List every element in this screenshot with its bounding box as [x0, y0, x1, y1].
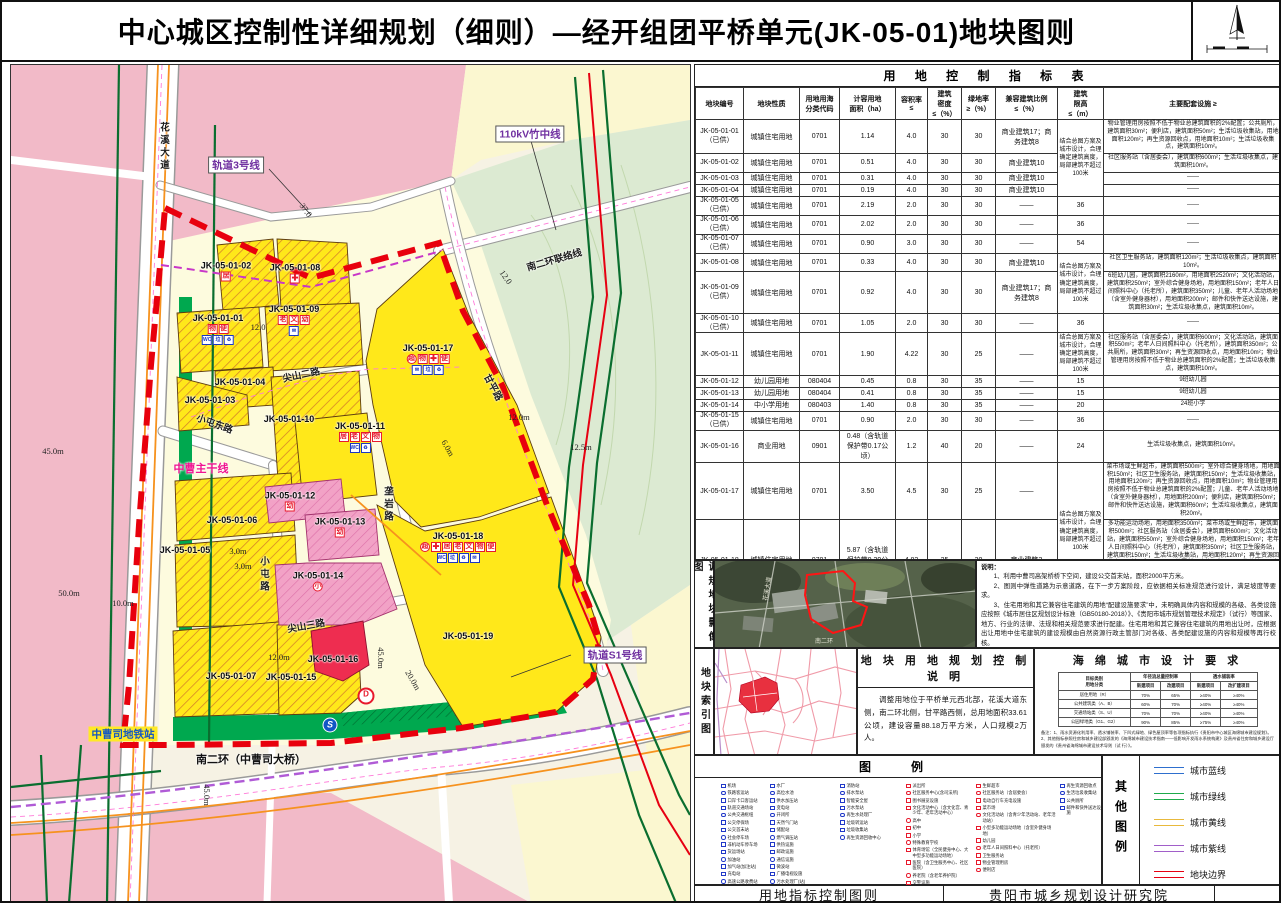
- facility-chip: 垃: [423, 365, 433, 375]
- legend-item-label: 铁路客运站: [728, 790, 749, 795]
- table-cell: ——: [1104, 172, 1281, 184]
- table-cell: ——: [996, 375, 1058, 387]
- legend-item: 加油站: [721, 857, 767, 862]
- table-cell: ——: [1104, 234, 1281, 253]
- plan-sheet: 中心城区控制性详细规划（细则）—经开组团平桥单元(JK-05-01)地块图则: [0, 0, 1281, 903]
- table-row: JK-05-01-18城镇住宅用地07015.87（含轨道 保护带0.39公 顷…: [696, 520, 1281, 560]
- table-cell: 5.87（含轨道 保护带0.39公 顷）: [840, 520, 896, 560]
- table-cell: 城镇住宅用地: [744, 120, 800, 154]
- table-cell: 社区服务站（含居委会），建筑面积600m²；文化活动站，建筑面积550m²；老年…: [1104, 333, 1281, 375]
- legend-item-label: 变电站: [777, 805, 790, 810]
- legend-item-label: 文化活动站（含青少年活动站、老年活动站）: [983, 812, 1057, 823]
- table-cell: 0.45: [840, 375, 896, 387]
- legend-item-label: 生活垃圾收集站: [1067, 790, 1097, 795]
- legend-item-label: 高中: [913, 818, 922, 823]
- table-cell: 0701: [800, 411, 840, 430]
- table-cell: 30: [928, 462, 962, 520]
- legend-item-label: 广播电视设施: [777, 871, 803, 876]
- legend-item-label: 电动自行车充电设施: [983, 798, 1022, 803]
- legend-item: 天然气门站: [770, 820, 832, 825]
- facility-chip: WC: [349, 443, 359, 453]
- block-label: JK-05-01-18超✚居老文物便WC垃♻✉: [420, 531, 496, 563]
- table-cell: 4.0: [896, 120, 928, 154]
- col-header: 容积率 ≤: [896, 88, 928, 120]
- legend-item-icon: [976, 868, 981, 873]
- table-cell: 4.0: [896, 154, 928, 173]
- note-item: 3、住宅用地和其它兼容住宅建筑的用地“配建设施要求”中，未明确具体内容和规模的各…: [981, 601, 1276, 648]
- notes-panel: 说明： 1、利用中曹司高架桥桥下空间，建设公交首末站，面积2000平方米。2、图…: [976, 560, 1281, 648]
- legend-item: 体育场馆（全民健身中心、大中型多功能运动场地）: [906, 847, 972, 858]
- legend-item-label: 公交停保场: [728, 820, 749, 825]
- table-cell: 幼儿园用地: [744, 375, 800, 387]
- other-legend-item: 地块边界: [1154, 868, 1272, 881]
- facility-chip: ✚: [431, 542, 441, 552]
- dimension-label: 12.0: [498, 268, 515, 286]
- block-label: JK-05-01-12幼: [265, 491, 316, 512]
- legend-item-label: 图书展览设施: [913, 798, 939, 803]
- table-row: JK-05-01-11城镇住宅用地07011.904.223025——结合总图方…: [696, 333, 1281, 375]
- table-cell: 30: [962, 272, 996, 314]
- table-cell: 36: [1058, 196, 1104, 215]
- line-swatch: [1154, 793, 1184, 800]
- legend-item-icon: [770, 879, 775, 884]
- table-cell: 城镇住宅用地: [744, 333, 800, 375]
- legend-item: 非机动车停车场: [721, 842, 767, 847]
- table-cell: 城镇住宅用地: [744, 234, 800, 253]
- legend-item-label: 非机动车停车场: [728, 842, 758, 847]
- legend-title: 图 例: [695, 756, 1101, 778]
- table-cell: 商业建筑17；商 务建筑8: [996, 120, 1058, 154]
- legend-panel: 图 例 机场铁路客运站口岸卡口客运站轨道交通场站公共交通枢纽公交停保场公交首末站…: [694, 755, 1102, 885]
- legend-item-label: 垃圾转运站: [847, 820, 868, 825]
- block-label: JK-05-01-10: [264, 414, 315, 424]
- table-row: JK-05-01-01 （已供）城镇住宅用地07011.144.03030商业建…: [696, 120, 1281, 154]
- table-cell: 30: [928, 314, 962, 333]
- legend-item-label: 供水加压站: [777, 798, 798, 803]
- table-cell: JK-05-01-17: [696, 462, 744, 520]
- map-callout: 轨道3号线: [208, 157, 264, 174]
- table-cell: 30: [928, 333, 962, 375]
- facility-chip: 超: [420, 542, 430, 552]
- table-cell: 15: [1058, 375, 1104, 387]
- title-bar: 中心城区控制性详细规划（细则）—经开组团平桥单元(JK-05-01)地块图则: [2, 2, 1191, 62]
- scale-bar-icon: [1207, 45, 1267, 53]
- table-cell: 城镇住宅用地: [744, 272, 800, 314]
- table-cell: 36: [1058, 215, 1104, 234]
- table-cell: 城镇住宅用地: [744, 462, 800, 520]
- block-label: JK-05-01-01物便WC垃♻: [193, 313, 244, 345]
- table-cell: 40: [928, 430, 962, 462]
- facility-chip: 超: [407, 354, 417, 364]
- col-header: 兼容建筑比例 ≤（%）: [996, 88, 1058, 120]
- legend-item-label: 初中: [913, 825, 922, 830]
- facility-chip: ♻: [224, 335, 234, 345]
- block-label: JK-05-01-13幼: [315, 517, 366, 538]
- other-legend-title: 其他图例: [1103, 756, 1140, 884]
- sponge-row: 公共建筑类（A、B）60%70%≥40%≥40%: [1058, 700, 1257, 709]
- table-cell: JK-05-01-03: [696, 172, 744, 184]
- table-cell: JK-05-01-08: [696, 253, 744, 272]
- legend-item: 菜市场: [976, 805, 1056, 810]
- facility-chip: ✉: [412, 365, 422, 375]
- table-cell: 菜市场或生鲜超市，建筑面积500m²；室外综合健身场地，用地面积150m²；社区…: [1104, 462, 1281, 520]
- legend-item-icon: [721, 857, 726, 862]
- table-cell: 0.33: [840, 253, 896, 272]
- sponge-row: 公园绿地类（G1、G2）90%85%≥75%≥40%: [1058, 718, 1257, 727]
- table-cell: 生活垃圾收集点，建筑面积10m²。: [1104, 430, 1281, 462]
- table-cell: 0701: [800, 215, 840, 234]
- table-cell: 30: [962, 184, 996, 196]
- table-cell: JK-05-01-02: [696, 154, 744, 173]
- legend-item-label: 消防站: [847, 783, 860, 788]
- legend-item: 公共厕所: [1060, 798, 1102, 803]
- legend-item: 轨道交通场站: [721, 805, 767, 810]
- table-cell: JK-05-01-09 （已供）: [696, 272, 744, 314]
- legend-item: 再生资源回收点: [1060, 783, 1102, 788]
- legend-item-label: 污水处理厂(站): [777, 879, 806, 884]
- table-cell: ——: [996, 196, 1058, 215]
- dimension-label: 6.0m: [439, 438, 456, 458]
- block-label: JK-05-01-09老文幼✉: [269, 304, 320, 336]
- legend-item-icon: [840, 820, 845, 825]
- facility-chip: ✉: [289, 326, 299, 336]
- legend-item: 铁路客运站: [721, 790, 767, 795]
- legend-item: 垃圾收集站: [840, 827, 902, 832]
- table-cell: 30: [928, 253, 962, 272]
- legend-item-label: 垃圾收集站: [847, 827, 868, 832]
- table-cell: 城镇住宅用地: [744, 196, 800, 215]
- table-cell: 多功能运动场地，用地面积3500m²；菜市场或生鲜超市，建筑面积500m²；社区…: [1104, 520, 1281, 560]
- legend-item-icon: [721, 850, 726, 855]
- table-row: JK-05-01-04城镇住宅用地07010.194.03030商业建筑10——: [696, 184, 1281, 196]
- table-cell: 30: [928, 215, 962, 234]
- table-cell: 4.0: [896, 272, 928, 314]
- block-label: JK-05-01-06: [207, 515, 258, 525]
- table-cell: JK-05-01-04: [696, 184, 744, 196]
- legend-item-label: 幼儿园: [983, 838, 996, 843]
- facility-chip: 便: [440, 354, 450, 364]
- legend-item-icon: [840, 828, 845, 833]
- block-label: JK-05-01-15: [266, 672, 317, 682]
- table-cell: 0.8: [896, 387, 928, 399]
- facility-chip: 幼: [300, 315, 310, 325]
- legend-item: 再生资源回收中心: [840, 835, 902, 840]
- table-cell: 社区卫生服务站，建筑面积120m²；生活垃圾收集点，建筑面积10m²。: [1104, 253, 1281, 272]
- facility-chip: ✚: [290, 274, 300, 284]
- legend-item: 水厂: [770, 783, 832, 788]
- table-cell: 0701: [800, 520, 840, 560]
- block-label: JK-05-01-07: [206, 671, 257, 681]
- road-label: 南二环（中曹司大桥）: [196, 751, 306, 767]
- legend-item: 供热设施: [770, 842, 832, 847]
- table-cell: 商业建筑10: [996, 184, 1058, 196]
- col-header: 绿地率 ≥（%）: [962, 88, 996, 120]
- legend-item-icon: [721, 798, 726, 803]
- table-row: JK-05-01-05 （已供）城镇住宅用地07012.192.03030——3…: [696, 196, 1281, 215]
- table-cell: 2.02: [840, 215, 896, 234]
- table-cell: 0.90: [840, 411, 896, 430]
- legend-item: 初中: [906, 825, 972, 830]
- table-cell: JK-05-01-07 （已供）: [696, 234, 744, 253]
- dimension-label: 37.0: [298, 201, 315, 219]
- legend-item-icon: [770, 872, 775, 877]
- dimension-label: 12.5m: [570, 442, 592, 452]
- legend-item: 垃圾转运站: [840, 820, 902, 825]
- table-cell: ——: [1104, 196, 1281, 215]
- table-cell: ——: [996, 462, 1058, 520]
- legend-item-label: 派出所: [913, 783, 926, 788]
- table-cell: 30: [928, 120, 962, 154]
- table-cell: ——: [996, 399, 1058, 411]
- table-row: JK-05-01-16商业用地09010.48（含轨道 保护带0.17公 顷）1…: [696, 430, 1281, 462]
- table-cell: 35: [962, 375, 996, 387]
- legend-item-icon: [770, 813, 775, 818]
- table-cell: 24班小学: [1104, 399, 1281, 411]
- table-cell: 4.22: [896, 333, 928, 375]
- legend-item: 医院（含卫生服务中心、社区医院）: [906, 860, 972, 871]
- legend-item-icon: [976, 860, 981, 865]
- table-cell: ——: [996, 314, 1058, 333]
- legend-item-icon: [770, 850, 775, 855]
- legend-item-icon: [721, 872, 726, 877]
- legend-item-icon: [906, 840, 911, 845]
- table-row: JK-05-01-09 （已供）城镇住宅用地07010.924.03030商业建…: [696, 272, 1281, 314]
- table-cell: 商业建筑3: [996, 520, 1058, 560]
- legend-item-icon: [721, 784, 726, 789]
- footer-sheet-name: 用地指标控制图则: [695, 886, 944, 902]
- table-cell: 25: [962, 462, 996, 520]
- table-cell: 商业建筑10: [996, 172, 1058, 184]
- facility-chip: 文: [360, 432, 370, 442]
- dimension-label: 12.0m: [508, 412, 530, 422]
- table-cell: 0.41: [840, 387, 896, 399]
- table-cell: 4.0: [896, 253, 928, 272]
- table-cell: 0701: [800, 172, 840, 184]
- legend-item: 文化活动站（含青少年活动站、老年活动站）: [976, 812, 1056, 823]
- control-text: 调整用地位于平桥单元西北部，花溪大道东侧，南二环北侧，甘平路西侧，总用地面积33…: [864, 694, 1027, 745]
- facility-chip: 居: [221, 272, 231, 282]
- legend-item-label: 天然气门站: [777, 820, 798, 825]
- legend-item: 口岸卡口客运站: [721, 798, 767, 803]
- legend-item-icon: [906, 784, 911, 789]
- legend-item-label: 邮政设施: [777, 849, 794, 854]
- dimension-label: 10.0m: [112, 598, 134, 608]
- table-cell: 物业管理用房按照不低于物业总建筑面积的2%配置；公共厕所，建筑面积30m²；便利…: [1104, 120, 1281, 154]
- table-cell: JK-05-01-06 （已供）: [696, 215, 744, 234]
- table-cell: 0701: [800, 333, 840, 375]
- table-cell: 20: [962, 430, 996, 462]
- facility-chip: 老: [453, 542, 463, 552]
- legend-item-icon: [906, 860, 911, 865]
- sponge-table: 目标类别 用地分类年径流总量控制率透水铺装率新建项目改建项目新建项目改扩建项目居…: [1058, 672, 1258, 727]
- table-cell: 幼儿园用地: [744, 387, 800, 399]
- legend-item-label: 特殊教育学校: [913, 840, 939, 845]
- legend-item: 派出所: [906, 783, 972, 788]
- road-label: 花溪大道: [156, 122, 170, 172]
- block-label: JK-05-01-14小: [293, 571, 344, 592]
- control-description: 地 块 用 地 规 划 控 制 说 明 调整用地位于平桥单元西北部，花溪大道东侧…: [857, 648, 1034, 755]
- table-row: JK-05-01-07 （已供）城镇住宅用地07010.903.03030——5…: [696, 234, 1281, 253]
- col-header: 建筑 限高 ≤（m）: [1058, 88, 1104, 120]
- table-row: JK-05-01-08城镇住宅用地07010.334.03030商业建筑10结合…: [696, 253, 1281, 272]
- table-cell: 0.19: [840, 184, 896, 196]
- legend-item-label: 公共厕所: [1067, 798, 1084, 803]
- facility-chip: 老: [278, 315, 288, 325]
- legend-item-icon: [770, 864, 775, 869]
- legend-item-label: 机场: [728, 783, 737, 788]
- sponge-city-panel: 海 绵 城 市 设 计 要 求 目标类别 用地分类年径流总量控制率透水铺装率新建…: [1034, 648, 1281, 755]
- block-label: JK-05-01-03: [185, 395, 236, 405]
- legend-item-icon: [721, 879, 726, 884]
- legend-item-icon: [906, 791, 911, 796]
- road-label: 小屯东路: [195, 410, 236, 436]
- facility-chip: 文: [289, 315, 299, 325]
- line-swatch: [1154, 767, 1184, 774]
- legend-item-label: 老年人日间照料中心（托老所）: [983, 845, 1043, 850]
- col-header: 地块编号: [696, 88, 744, 120]
- legend-item-label: 卫生服务站: [983, 853, 1004, 858]
- table-cell: 0701: [800, 234, 840, 253]
- dimension-label: 3.0m: [234, 561, 251, 571]
- map-labels: JK-05-01-02居JK-05-01-08✚JK-05-01-01物便WC垃…: [11, 65, 690, 903]
- legend-item-label: 加气站(加注站): [728, 864, 757, 869]
- note-item: 1、利用中曹司高架桥桥下空间，建设公交首末站，面积2000平方米。: [981, 572, 1276, 581]
- legend-item: 特殊教育学校: [906, 840, 972, 845]
- legend-item: 卫生服务站: [976, 853, 1056, 858]
- legend-item: 再生水处理厂: [840, 812, 902, 817]
- other-legend-item: 城市蓝线: [1154, 764, 1272, 777]
- road-label: 小屯路: [256, 556, 270, 594]
- facility-chip: 物: [371, 432, 381, 442]
- legend-item-label: 便利店: [983, 867, 996, 872]
- table-cell: 1.05: [840, 314, 896, 333]
- road-label: 中曹主干线: [174, 460, 229, 476]
- legend-item-icon: [1060, 791, 1065, 796]
- legend-item: 消防站: [840, 783, 902, 788]
- table-cell: JK-05-01-15 （已供）: [696, 411, 744, 430]
- legend-item-label: 储配站: [777, 827, 790, 832]
- legend-item-icon: [721, 864, 726, 869]
- facility-chip: 小: [313, 582, 323, 592]
- table-cell: 商业用地: [744, 430, 800, 462]
- table-cell: ——: [996, 411, 1058, 430]
- legend-item: 公交首末站: [721, 827, 767, 832]
- table-cell: 0.92: [840, 272, 896, 314]
- table-cell: 30: [962, 411, 996, 430]
- table-cell: 结合总图方案及城市设计，合理确定建筑高度，局部建筑不超过100米: [1058, 462, 1104, 560]
- table-cell: 0.90: [840, 234, 896, 253]
- table-cell: 中小学用地: [744, 399, 800, 411]
- legend-item-label: 小型多功能运动场地（含室外健身场地）: [983, 825, 1057, 836]
- legend-item-icon: [976, 813, 981, 818]
- table-row: JK-05-01-12幼儿园用地0804040.450.83035——159班幼…: [696, 375, 1281, 387]
- table-cell: 080403: [800, 399, 840, 411]
- legend-item: 公交停保场: [721, 820, 767, 825]
- table-row: JK-05-01-17城镇住宅用地07013.504.53025——结合总图方案…: [696, 462, 1281, 520]
- table-cell: 2.0: [896, 314, 928, 333]
- legend-item-icon: [721, 835, 726, 840]
- table-cell: 30: [928, 387, 962, 399]
- table-row: JK-05-01-13幼儿园用地0804040.410.83035——159班幼…: [696, 387, 1281, 399]
- table-cell: 30: [962, 154, 996, 173]
- dimension-label: 12.0m: [268, 652, 290, 662]
- legend-item-label: 高速公路收费站: [728, 879, 758, 884]
- table-cell: 城镇住宅用地: [744, 184, 800, 196]
- road-label: 甘平路: [481, 371, 507, 403]
- col-header: 建筑 密度 ≤（%）: [928, 88, 962, 120]
- legend-item: 高中: [906, 818, 972, 823]
- table-cell: 30: [928, 154, 962, 173]
- legend-item-label: 燃气调压站: [777, 835, 798, 840]
- facility-chip: 文: [464, 542, 474, 552]
- table-cell: 36: [1058, 314, 1104, 333]
- legend-item-icon: [840, 798, 845, 803]
- legend-item-icon: [721, 813, 726, 818]
- legend-item: 文化活动中心（含文化宫、青少年、老年活动中心）: [906, 805, 972, 816]
- dimension-label: 45.0m: [376, 647, 386, 669]
- land-use-index-table: 用 地 控 制 指 标 表 地块编号地块性质用地用海 分类代码计容用地 面积（h…: [694, 64, 1281, 560]
- legend-item-icon: [770, 828, 775, 833]
- legend-item-label: 菜市场: [983, 805, 996, 810]
- dimension-label: 12.0: [251, 322, 266, 332]
- table-cell: 1.2: [896, 430, 928, 462]
- legend-item: 物业管理用房: [976, 860, 1056, 865]
- table-cell: 30: [962, 314, 996, 333]
- table-cell: 30: [928, 399, 962, 411]
- legend-item: 污水泵站: [840, 805, 902, 810]
- north-arrow-icon: [1193, 2, 1281, 56]
- table-cell: 4.0: [896, 184, 928, 196]
- note-item: 2、图则中弹性道路为示意道路，在下一步方案阶段，应依据相关标准规范进行设计，满足…: [981, 582, 1276, 601]
- sponge-title: 海 绵 城 市 设 计 要 求: [1035, 649, 1280, 671]
- legend-item: 养老院（含老年养护院）: [906, 873, 972, 878]
- legend-item-icon: [976, 791, 981, 796]
- legend-item: 老年人日间照料中心（托老所）: [976, 845, 1056, 850]
- facility-chip: 老: [349, 432, 359, 442]
- table-row: JK-05-01-15 （已供）城镇住宅用地07010.902.03030——3…: [696, 411, 1281, 430]
- table-cell: 30: [962, 196, 996, 215]
- table-cell: 54: [1058, 234, 1104, 253]
- legend-grid: 机场铁路客运站口岸卡口客运站轨道交通场站公共交通枢纽公交停保场公交首末站社会停车…: [695, 778, 1101, 882]
- facility-chip: ✚: [429, 354, 439, 364]
- facility-chip: ♻: [434, 365, 444, 375]
- table-cell: 0701: [800, 184, 840, 196]
- legend-item-label: 社区服务中心(含司法所): [913, 790, 959, 795]
- table-cell: 0.8: [896, 375, 928, 387]
- table-cell: 30: [962, 172, 996, 184]
- legend-item: 邮政设施: [770, 849, 832, 854]
- table-cell: ——: [1104, 411, 1281, 430]
- legend-item-icon: [976, 853, 981, 858]
- legend-item-icon: [906, 806, 911, 811]
- table-cell: ——: [996, 430, 1058, 462]
- legend-item-icon: [906, 818, 911, 823]
- legend-item: 燃气调压站: [770, 835, 832, 840]
- table-cell: ——: [1104, 184, 1281, 196]
- facility-chip: 垃: [213, 335, 223, 345]
- legend-item: 储配站: [770, 827, 832, 832]
- facility-chip: 物: [208, 324, 218, 334]
- table-cell: 0.48（含轨道 保护带0.17公 顷）: [840, 430, 896, 462]
- legend-item-icon: [840, 791, 845, 796]
- facility-chip: ♻: [360, 443, 370, 453]
- table-cell: 0701: [800, 154, 840, 173]
- table-cell: 城镇住宅用地: [744, 154, 800, 173]
- legend-item: 社会停车场: [721, 835, 767, 840]
- legend-item-label: 水厂: [777, 783, 786, 788]
- legend-item-icon: [906, 848, 911, 853]
- facility-chip: 居: [338, 432, 348, 442]
